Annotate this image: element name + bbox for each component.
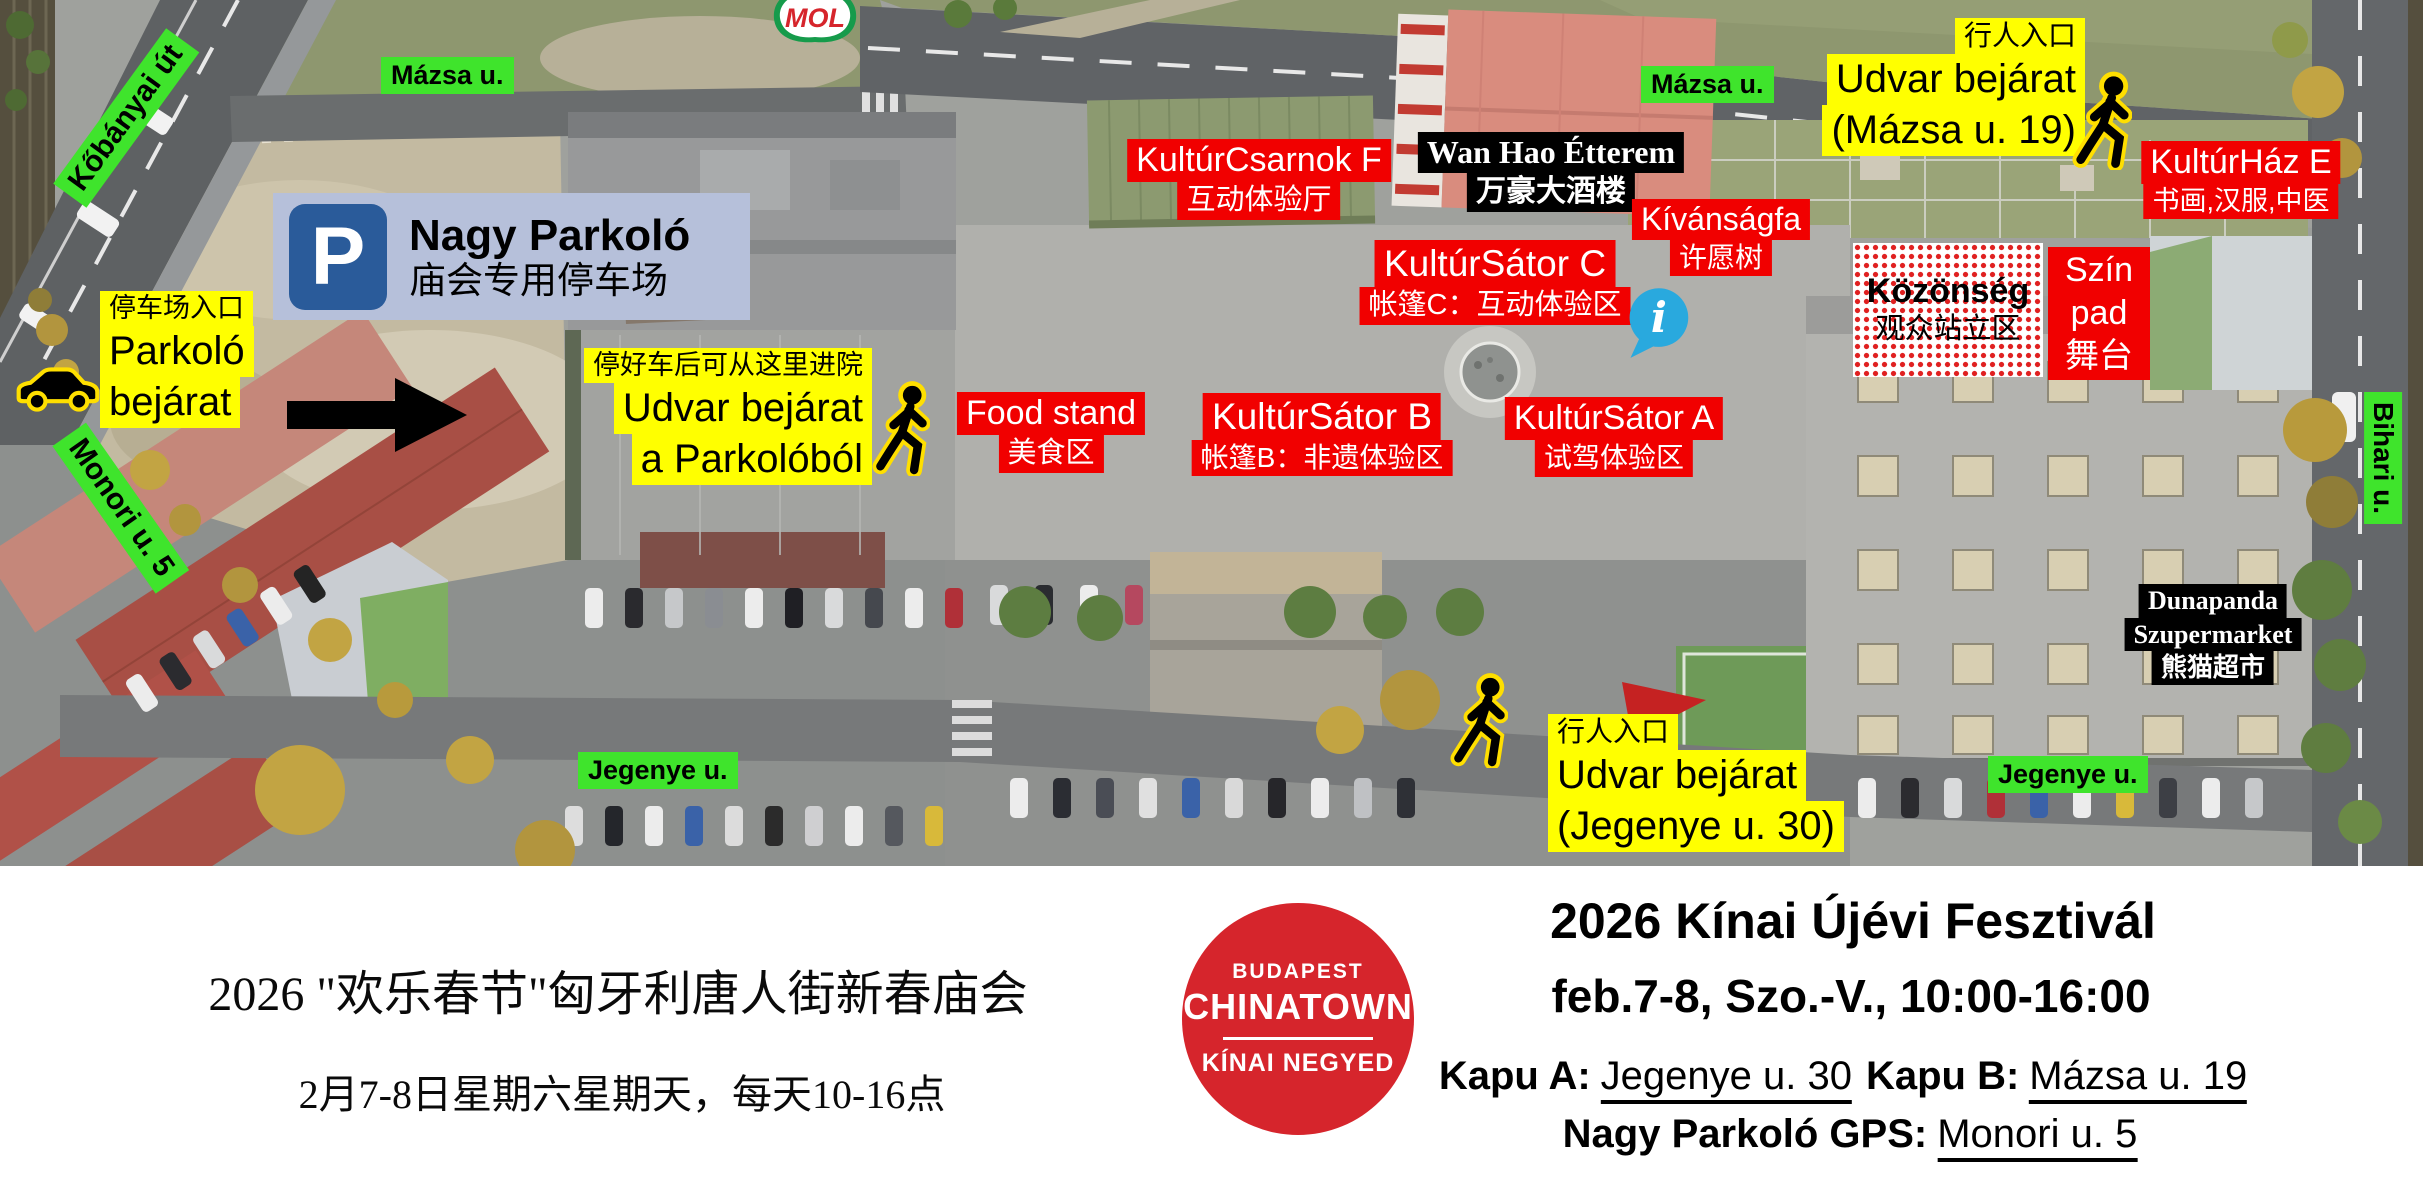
- venue-kulturcsarnok-zh: 互动体验厅: [1177, 182, 1340, 219]
- street-label-mazsa-left: Mázsa u.: [381, 57, 514, 94]
- street-label-mazsa-right: Mázsa u.: [1641, 66, 1774, 103]
- entrance-jegenye-zh: 行人入口: [1548, 714, 1678, 750]
- footer-hungarian-schedule: feb.7-8, Szo.-V., 10:00-16:00: [1551, 969, 2150, 1023]
- gate-b-value: Mázsa u. 19: [2029, 1054, 2247, 1104]
- parking-sign: P Nagy Parkoló 庙会专用停车场: [273, 193, 750, 320]
- parking-entrance-label: 停车场入口 Parkoló bejárat: [100, 291, 254, 428]
- direction-arrow: [285, 374, 471, 458]
- logo-separator: [1223, 1037, 1373, 1040]
- venue-kulturcsarnok-name: KultúrCsarnok F: [1127, 139, 1391, 182]
- entrance-mazsa-line1: Udvar bejárat: [1827, 54, 2085, 105]
- venue-label-kulturhaz-e: KultúrHáz E 书画,汉服,中医: [2141, 141, 2340, 219]
- venue-kultursator-a-name: KultúrSátor A: [1505, 397, 1723, 440]
- entrance-mazsa-line2: (Mázsa u. 19): [1822, 105, 2085, 156]
- parking-sign-title: Nagy Parkoló: [409, 211, 690, 260]
- mol-text: MOL: [785, 3, 845, 33]
- audience-area-zh: 观众站立区: [1875, 311, 2020, 347]
- entrance-label-jegenye-30: 行人入口 Udvar bejárat (Jegenye u. 30): [1548, 714, 1844, 852]
- venue-kultursator-a-zh: 试驾体验区: [1535, 440, 1693, 476]
- venue-label-kultursator-c: KultúrSátor C 帐篷C：互动体验区: [1360, 240, 1631, 325]
- gate-b-label: Kapu B:: [1866, 1054, 2019, 1098]
- parking-entrance-line1: Parkoló: [100, 326, 254, 377]
- courtyard-entrance-zh: 停好车后可从这里进院: [584, 348, 872, 383]
- logo-line1: BUDAPEST: [1232, 960, 1364, 984]
- footer-chinese-title: 2026 "欢乐春节"匈牙利唐人街新春庙会: [208, 954, 1027, 1024]
- parking-p-icon: P: [289, 204, 387, 310]
- courtyard-entrance-line1: Udvar bejárat: [614, 383, 872, 434]
- venue-kultursator-c-name: KultúrSátor C: [1375, 240, 1615, 287]
- street-label-bihari: Bihari u.: [2364, 392, 2402, 524]
- venue-dunapanda-zh: 熊猫超市: [2152, 651, 2274, 685]
- venue-wanhao-zh: 万豪大酒楼: [1467, 173, 1635, 212]
- venue-wanhao-name: Wan Hao Étterem: [1418, 132, 1684, 173]
- parking-entrance-line2: bejárat: [100, 377, 240, 428]
- stage-zh: 舞台: [2065, 335, 2133, 378]
- gps-label: Nagy Parkoló GPS:: [1563, 1112, 1928, 1156]
- venue-label-kultursator-b: KultúrSátor B 帐篷B：非遗体验区: [1192, 393, 1453, 476]
- venue-food-stand-zh: 美食区: [998, 435, 1103, 472]
- aerial-map: MOL Kőbányai út Mázsa u. Monori u. 5 Jeg…: [0, 0, 2423, 866]
- venue-label-kulturcsarnok-f: KultúrCsarnok F 互动体验厅: [1127, 139, 1391, 220]
- courtyard-entrance-line2: a Parkolóból: [632, 434, 872, 485]
- courtyard-entrance-from-parking-label: 停好车后可从这里进院 Udvar bejárat a Parkolóból: [584, 348, 872, 485]
- venue-dunapanda-line1: Dunapanda: [2139, 584, 2287, 618]
- entrance-jegenye-line1: Udvar bejárat: [1548, 750, 1806, 801]
- info-icon-glyph: i: [1651, 292, 1667, 342]
- footer-gps-line: Nagy Parkoló GPS:Monori u. 5: [1563, 1112, 2138, 1162]
- venue-kulturhaz-zh: 书画,汉服,中医: [2143, 184, 2338, 219]
- info-icon: i: [1625, 286, 1691, 362]
- venue-kulturhaz-name: KultúrHáz E: [2141, 141, 2340, 184]
- parking-sign-subtitle-zh: 庙会专用停车场: [409, 260, 690, 301]
- gps-value: Monori u. 5: [1937, 1112, 2137, 1162]
- entrance-jegenye-line2: (Jegenye u. 30): [1548, 801, 1844, 852]
- gate-a-label: Kapu A:: [1439, 1054, 1591, 1098]
- parking-entrance-zh: 停车场入口: [100, 291, 253, 326]
- pedestrian-icon-jegenye: [1450, 670, 1508, 768]
- budapest-chinatown-logo: BUDAPEST CHINATOWN KÍNAI NEGYED: [1182, 903, 1414, 1135]
- gate-a-value: Jegenye u. 30: [1601, 1054, 1852, 1104]
- venue-kivansagfa-zh: 许愿树: [1670, 240, 1772, 276]
- venue-kivansagfa-name: Kívánságfa: [1632, 199, 1810, 240]
- venue-dunapanda-line2: Szupermarket: [2125, 618, 2302, 652]
- venue-label-kivansagfa: Kívánságfa 许愿树: [1632, 199, 1810, 276]
- venue-label-kultursator-a: KultúrSátor A 试驾体验区: [1505, 397, 1723, 477]
- entrance-label-mazsa-19: 行人入口 Udvar bejárat (Mázsa u. 19): [1822, 18, 2085, 156]
- audience-area-label: Közönség 观众站立区: [1853, 243, 2043, 377]
- venue-kultursator-b-zh: 帐篷B：非遗体验区: [1192, 440, 1453, 476]
- stage-label: Szín pad 舞台: [2048, 247, 2150, 380]
- street-label-jegenye-right: Jegenye u.: [1988, 756, 2148, 793]
- stage-line1: Szín: [2065, 249, 2133, 292]
- festival-map-poster: MOL Kőbányai út Mázsa u. Monori u. 5 Jeg…: [0, 0, 2423, 1203]
- venue-label-dunapanda: Dunapanda Szupermarket 熊猫超市: [2125, 584, 2302, 685]
- footer-hungarian-title: 2026 Kínai Újévi Fesztivál: [1550, 892, 2156, 950]
- pedestrian-icon-parking: [872, 378, 930, 476]
- entrance-mazsa-zh: 行人入口: [1955, 18, 2085, 54]
- venue-label-food-stand: Food stand 美食区: [957, 392, 1145, 473]
- logo-line3: KÍNAI NEGYED: [1202, 1049, 1395, 1078]
- street-label-jegenye-left: Jegenye u.: [578, 752, 738, 789]
- venue-kultursator-b-name: KultúrSátor B: [1203, 393, 1441, 440]
- audience-area-name: Közönség: [1867, 273, 2029, 310]
- footer-info-band: 2026 "欢乐春节"匈牙利唐人街新春庙会 2月7-8日星期六星期天，每天10-…: [0, 866, 2423, 1203]
- pedestrian-icon-mazsa: [2072, 68, 2132, 170]
- mol-gas-station-logo: MOL: [770, 0, 860, 48]
- stage-line2: pad: [2071, 292, 2128, 335]
- venue-food-stand-name: Food stand: [957, 392, 1145, 435]
- footer-gates-line: Kapu A:Jegenye u. 30Kapu B:Mázsa u. 19: [1439, 1054, 2247, 1104]
- logo-line2: CHINATOWN: [1183, 986, 1413, 1028]
- footer-chinese-schedule: 2月7-8日星期六星期天，每天10-16点: [299, 1062, 946, 1120]
- car-icon: [12, 356, 104, 418]
- venue-kultursator-c-zh: 帐篷C：互动体验区: [1360, 287, 1631, 324]
